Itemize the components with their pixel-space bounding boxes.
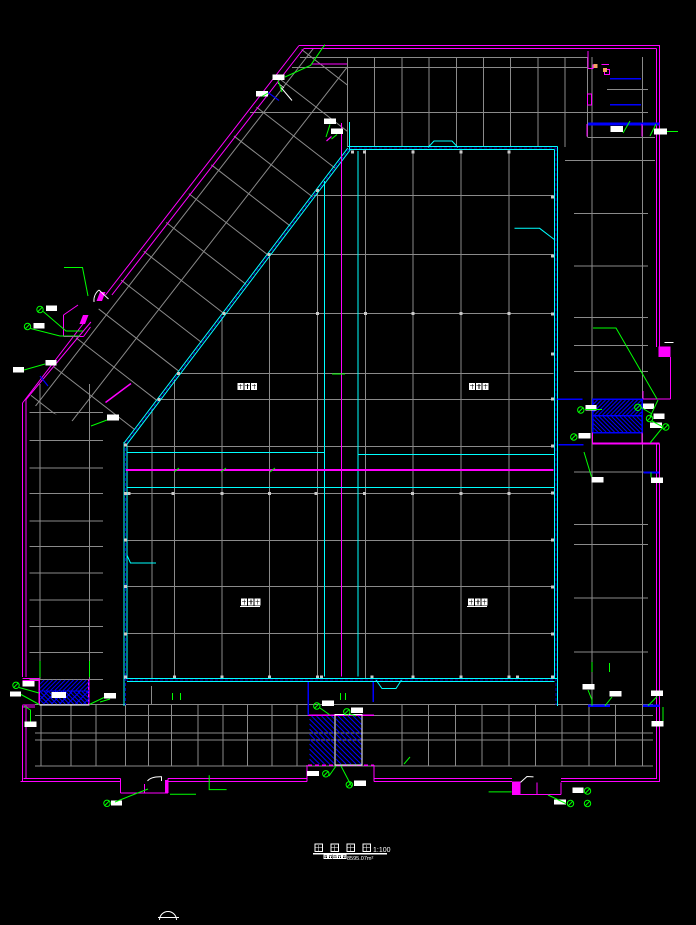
svg-text:8595.07m²: 8595.07m²: [347, 856, 373, 862]
svg-text:1:100: 1:100: [373, 847, 391, 854]
